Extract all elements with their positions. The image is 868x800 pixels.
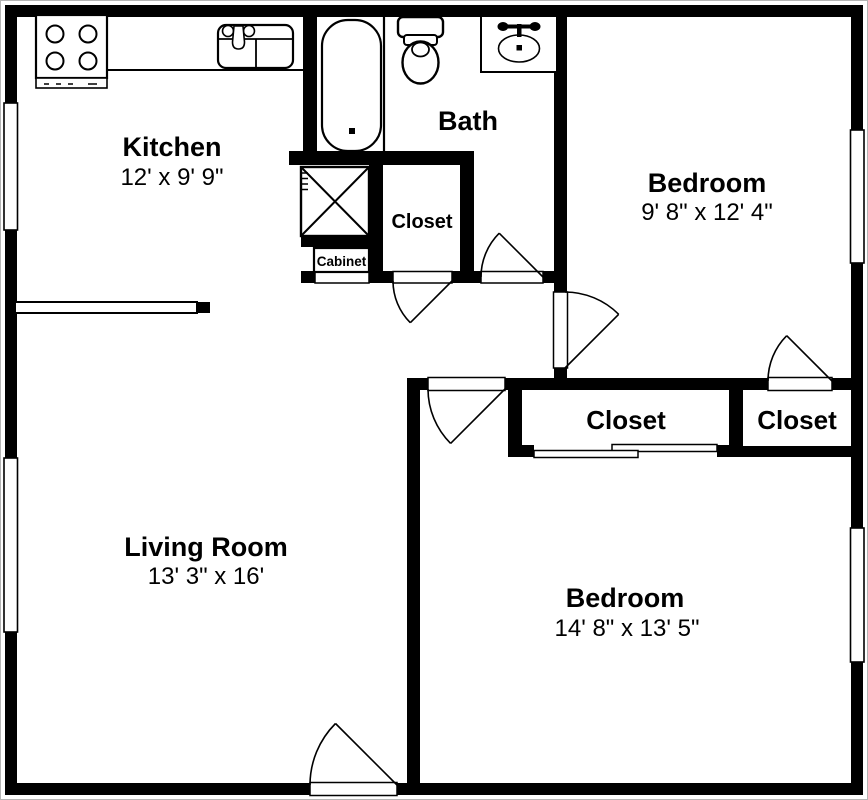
wall-hallcloset-jamb	[452, 271, 481, 283]
appliance-xbox-icon	[301, 167, 369, 236]
wall-top	[5, 5, 863, 17]
bath-door-opening	[481, 272, 543, 284]
toilet-icon	[398, 17, 443, 84]
kitchen-dimensions: 12' x 9' 9"	[120, 164, 223, 191]
wall-hall-living-c	[832, 378, 851, 390]
cabinet-front	[315, 272, 369, 284]
front-door-opening	[310, 783, 397, 796]
floor-plan: Cabinet Kitchen 12' x 9' 9" Bath Bedroom…	[0, 0, 868, 800]
breakfast-bar	[15, 302, 197, 313]
bedroom-bottom-dimensions: 14' 8" x 13' 5"	[555, 615, 700, 642]
wall-above-cabinet	[301, 237, 369, 247]
wall-hallcloset-right	[460, 165, 474, 283]
bedroom-top-label: Bedroom	[648, 168, 767, 198]
cabinet-label: Cabinet	[317, 254, 367, 269]
bedroom-top-dimensions: 9' 8" x 12' 4"	[641, 199, 773, 226]
kitchen-sink-icon	[218, 25, 293, 68]
wall-hall-living-b	[505, 378, 768, 390]
wall-hallcloset-left	[369, 165, 383, 283]
hall-living-door-opening	[428, 378, 505, 391]
hall-closet-label: Closet	[391, 211, 452, 233]
bedroom-top-door-opening	[554, 292, 568, 368]
breakfast-bar-cap	[197, 302, 210, 313]
cabinet: Cabinet	[314, 248, 369, 272]
wall-bottom	[5, 783, 863, 795]
wall-closet-bottom-b	[717, 445, 743, 457]
wall-living-bedroom2	[407, 390, 420, 783]
wall-tub-closet-band	[289, 151, 474, 165]
bathtub-icon	[322, 16, 384, 151]
bath-label: Bath	[438, 106, 498, 136]
kitchen-label: Kitchen	[122, 132, 221, 162]
living-room-dimensions: 13' 3" x 16'	[148, 563, 264, 590]
wall-cabinet-jamb-right	[369, 271, 393, 283]
living-room-label: Living Room	[124, 532, 288, 562]
wall-right	[851, 5, 863, 795]
sliding-door-panel-front	[534, 451, 638, 458]
hall-closet-opening	[393, 272, 452, 284]
window-bedroom-top	[851, 130, 865, 263]
wall-kitchen-bath	[303, 15, 317, 157]
wall-closet-bottom-a	[508, 445, 534, 457]
bedroom-bottom-closet-label: Closet	[586, 405, 666, 435]
wall-closet-bottom-c	[743, 446, 851, 457]
window-kitchen	[4, 103, 18, 230]
tub-drain	[349, 128, 355, 134]
floor-plan-svg: Cabinet Kitchen 12' x 9' 9" Bath Bedroom…	[0, 0, 868, 800]
bedroom-top-closet-opening	[768, 378, 832, 391]
stove-icon	[36, 15, 107, 88]
wall-cabinet-jamb-left	[301, 271, 315, 283]
bedroom-bottom-label: Bedroom	[566, 583, 685, 613]
wall-hall-living-a	[407, 378, 428, 390]
bedroom-top-closet-label: Closet	[757, 405, 837, 435]
window-bedroom-bottom	[851, 528, 865, 662]
window-living-room	[4, 458, 18, 632]
bathroom-sink-icon	[481, 16, 557, 72]
